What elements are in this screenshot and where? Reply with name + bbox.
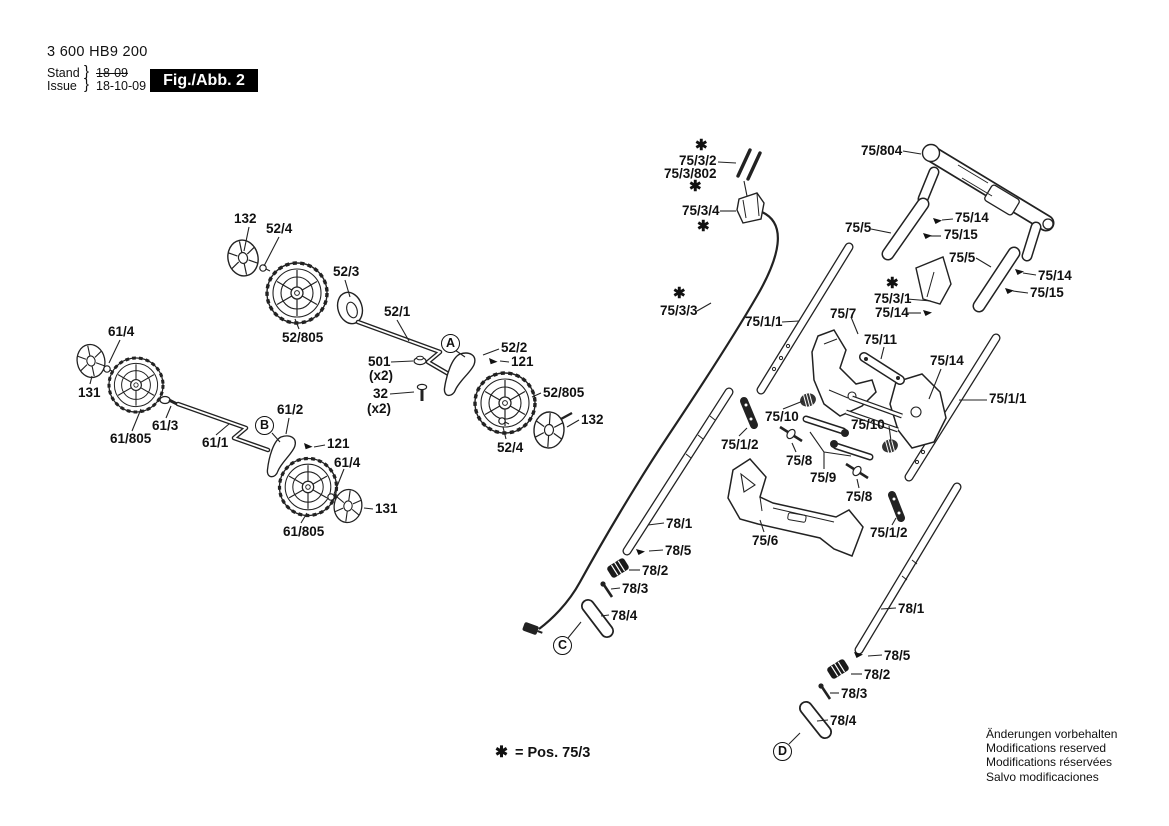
callout-52-4: 52/4 <box>497 441 523 454</box>
stand-label: Stand <box>47 66 80 80</box>
callout-75-804: 75/804 <box>861 144 902 157</box>
callout-52-4: 52/4 <box>266 222 292 235</box>
view-marker-b: B <box>255 416 274 435</box>
callout-52-3: 52/3 <box>333 265 359 278</box>
callout-75-6: 75/6 <box>752 534 778 547</box>
callout-78-4: 78/4 <box>611 609 637 622</box>
legend-text: = Pos. 75/3 <box>515 745 590 761</box>
callout-78-1: 78/1 <box>898 602 924 615</box>
callout-78-2: 78/2 <box>642 564 668 577</box>
callout-75-3-3: 75/3/3 <box>660 304 698 317</box>
view-marker-c: C <box>553 636 572 655</box>
callout-501: 501 <box>368 355 391 368</box>
callout-75-9: 75/9 <box>810 471 836 484</box>
callout-75-14: 75/14 <box>955 211 989 224</box>
callout-32-qty: (x2) <box>367 402 391 415</box>
notice-line-es: Salvo modificaciones <box>986 770 1117 784</box>
callout-75-1-1: 75/1/1 <box>745 315 783 328</box>
type-number: 3 600 HB9 200 <box>47 44 148 60</box>
callout-75-5: 75/5 <box>949 251 975 264</box>
callout-78-1: 78/1 <box>666 517 692 530</box>
asterisk-mark: ✱ <box>886 277 899 290</box>
callout-78-5: 78/5 <box>884 649 910 662</box>
callout-75-1-2: 75/1/2 <box>721 438 759 451</box>
callout-61-805: 61/805 <box>110 432 151 445</box>
callout-75-3-4: 75/3/4 <box>682 204 720 217</box>
modifications-notice: Änderungen vorbehalten Modifications res… <box>986 727 1117 784</box>
callout-75-11: 75/11 <box>864 333 897 346</box>
lower-tube-left-drawing <box>588 392 729 631</box>
callout-52-805: 52/805 <box>543 386 584 399</box>
callout-75-1-1: 75/1/1 <box>989 392 1027 405</box>
callout-78-5: 78/5 <box>665 544 691 557</box>
callout-75-8: 75/8 <box>786 454 812 467</box>
callout-75-15: 75/15 <box>1030 286 1064 299</box>
asterisk-mark: ✱ <box>697 220 710 233</box>
callout-78-3: 78/3 <box>622 582 648 595</box>
callout-52-805: 52/805 <box>282 331 323 344</box>
callout-75-1-2: 75/1/2 <box>870 526 908 539</box>
view-marker-a: A <box>441 334 460 353</box>
issue-date: 18-10-09 <box>96 79 146 93</box>
callout-75-7: 75/7 <box>830 307 856 320</box>
callout-78-2: 78/2 <box>864 668 890 681</box>
brace-glyph: } <box>84 76 89 93</box>
callout-75-10: 75/10 <box>851 418 885 431</box>
callout-61-805: 61/805 <box>283 525 324 538</box>
figure-label: Fig./Abb. 2 <box>150 69 258 92</box>
asterisk-legend: ✱= Pos. 75/3 <box>495 743 590 762</box>
callout-75-14: 75/14 <box>875 306 909 319</box>
handle-assembly-drawing <box>728 145 1053 557</box>
view-marker-d: D <box>773 742 792 761</box>
callout-75-3-1: 75/3/1 <box>874 292 912 305</box>
callout-32: 32 <box>373 387 388 400</box>
callout-75-10: 75/10 <box>765 410 799 423</box>
callout-75-15: 75/15 <box>944 228 978 241</box>
callout-61-1: 61/1 <box>202 436 228 449</box>
asterisk-glyph: ✱ <box>495 744 508 761</box>
callout-121: 121 <box>511 355 534 368</box>
callout-61-4: 61/4 <box>108 325 134 338</box>
callout-52-2: 52/2 <box>501 341 527 354</box>
callout-75-5: 75/5 <box>845 221 871 234</box>
callout-75-14: 75/14 <box>930 354 964 367</box>
callout-75-8: 75/8 <box>846 490 872 503</box>
callout-131: 131 <box>78 386 101 399</box>
superseded-date: 18-09 <box>96 66 128 80</box>
parts-diagram-page: 3 600 HB9 200 Stand Issue } } 18-09 18-1… <box>0 0 1169 826</box>
callout-501-qty: (x2) <box>369 369 393 382</box>
callout-78-4: 78/4 <box>830 714 856 727</box>
callout-52-1: 52/1 <box>384 305 410 318</box>
callout-75-14: 75/14 <box>1038 269 1072 282</box>
callout-131: 131 <box>375 502 398 515</box>
notice-line-de: Änderungen vorbehalten <box>986 727 1117 741</box>
asterisk-mark: ✱ <box>689 180 702 193</box>
asterisk-mark: ✱ <box>695 139 708 152</box>
notice-line-fr: Modifications réservées <box>986 755 1117 769</box>
notice-line-en: Modifications reserved <box>986 741 1117 755</box>
callout-61-2: 61/2 <box>277 403 303 416</box>
issue-label: Issue <box>47 79 77 93</box>
callout-121: 121 <box>327 437 350 450</box>
callout-61-3: 61/3 <box>152 419 178 432</box>
asterisk-mark: ✱ <box>673 287 686 300</box>
callout-61-4: 61/4 <box>334 456 360 469</box>
callout-132: 132 <box>234 212 257 225</box>
callout-132: 132 <box>581 413 604 426</box>
callout-78-3: 78/3 <box>841 687 867 700</box>
